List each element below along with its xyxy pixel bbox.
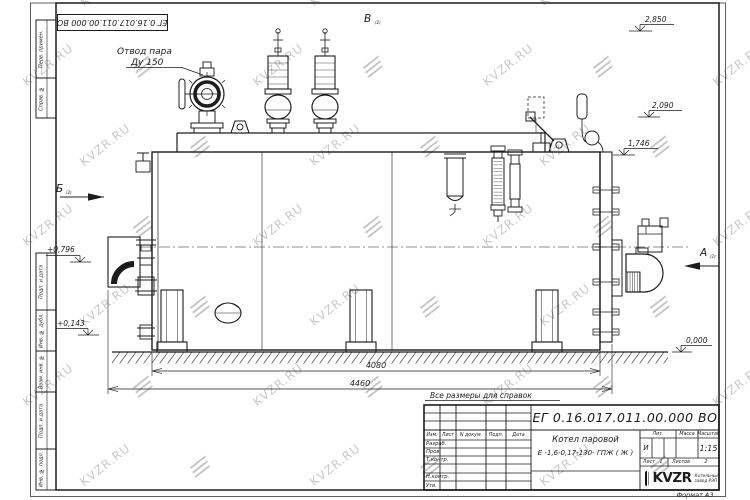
ground-line [112, 352, 668, 364]
view-label-a: А [699, 247, 707, 259]
lit-value: И [640, 438, 652, 458]
view-label-b: Б [56, 183, 63, 195]
boiler-supports [157, 290, 562, 352]
mass-header: Масса [676, 430, 698, 438]
safety-valve-2 [312, 29, 338, 133]
view-label-v: В [364, 13, 371, 25]
boiler-side-view [46, 25, 719, 395]
reference-note: Все размеры для справок [430, 391, 532, 400]
row-prov: Пров. [424, 448, 456, 456]
sheets-total: 2 [698, 458, 714, 466]
row-tkontr: Т.контр. [424, 456, 456, 464]
view-label-v-sub: (2) [375, 20, 381, 25]
level-2090: 2,090 [652, 101, 674, 110]
water-level-gauge-1 [491, 146, 505, 222]
callout-line1: Отвод пара [117, 47, 172, 57]
dim-4460: 4460 [350, 379, 370, 388]
logo-subtext-line2: завод РЭП [695, 478, 718, 483]
front-fittings [135, 153, 157, 339]
level-0796: +0,796 [47, 245, 75, 254]
corner-designation-stamp: ЕГ 0.16.017.011.00.000 ВО [57, 14, 168, 31]
col-header-izm: Изм. [424, 430, 440, 440]
level-0143: +0,143 [57, 319, 85, 328]
view-label-a-sub: (2) [710, 254, 716, 259]
level-2850: 2,850 [645, 15, 667, 24]
view-arrow-a-right [684, 262, 719, 270]
callout-leader [126, 68, 203, 76]
level-0000: 0,000 [686, 336, 708, 345]
pressure-gauge [577, 94, 603, 152]
logo-text: KVZR [652, 470, 691, 486]
view-label-b-sub: (2) [66, 190, 72, 195]
valve-handwheel [179, 79, 185, 109]
row-utv: Утв. [424, 481, 456, 490]
burner [612, 218, 668, 296]
strip-inv-dubl: Инв. № дубл. [36, 310, 47, 351]
engineering-drawing-sheet: { "watermark": { "text": "KVZR.RU" }, "c… [0, 0, 750, 500]
rear-wall [593, 152, 619, 342]
callout-line2: Ду 150 [130, 58, 164, 68]
scale-value: 1:15 [698, 438, 719, 458]
strip-podp-data-1: Подп. и дата [36, 253, 47, 310]
lifting-lug-left [231, 121, 249, 133]
sheets-label: Листов [669, 458, 693, 466]
col-header-sign: Подп. [486, 430, 506, 440]
corner-designation-text: ЕГ 0.16.017.011.00.000 ВО [57, 18, 167, 27]
strip-inv-podl: Инв. № подл. [36, 449, 47, 490]
col-header-list: Лист [440, 430, 456, 440]
boiler-shell [152, 133, 600, 350]
manhole [215, 303, 241, 323]
product-type: Е -1,6-0,17-130- ГПЖ ( Ж ) [531, 446, 640, 459]
strip-podp-data-2: Подп. и дата [36, 392, 47, 449]
title-designation: ЕГ 0.16.017.011.00.000 ВО [531, 405, 719, 430]
lit-header: Лит. [640, 430, 676, 438]
strip-perv-primen: Перв. примен. [36, 20, 47, 78]
lever-valve [526, 97, 554, 152]
scale-header: Масштаб [698, 430, 719, 438]
row-razrab: Разраб. [424, 440, 456, 448]
col-header-doc: N докум. [456, 430, 486, 440]
strip-sprav-no: Справ. № [36, 78, 47, 118]
dim-4080: 4080 [366, 361, 386, 370]
row-nkontr: Н.контр. [424, 473, 456, 481]
water-level-gauge-2 [508, 150, 522, 212]
logo-subtext: Котельный завод РЭП [695, 473, 719, 483]
company-logo: KVZR Котельный завод РЭП [640, 466, 719, 490]
strip-vzam-inv: Взам. инв. № [36, 351, 47, 392]
separator-vessel [444, 154, 466, 216]
safety-valve-1 [265, 29, 291, 133]
level-1746: 1,746 [628, 139, 650, 148]
sheet-label: Лист [641, 458, 657, 466]
lifting-lug-right [549, 139, 569, 152]
steam-outlet-valve [179, 62, 225, 133]
col-header-date: Дата [506, 430, 531, 440]
row-blank [424, 464, 456, 473]
logo-coil-icon [645, 471, 649, 486]
format-label: Формат А3 [655, 490, 735, 499]
sheet-number: 1 [656, 458, 666, 466]
